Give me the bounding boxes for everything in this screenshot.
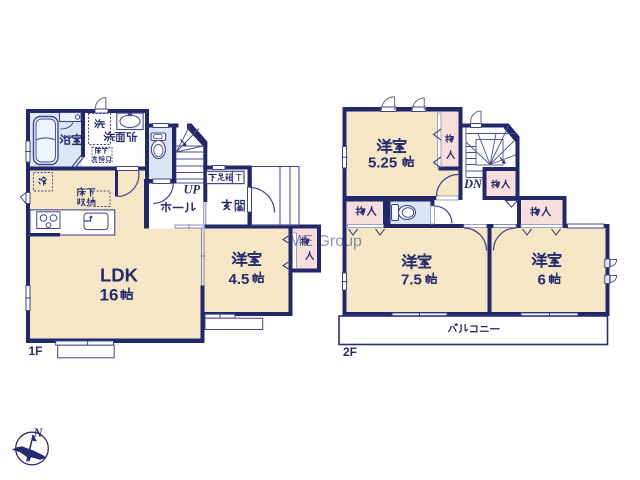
svg-text:DN: DN: [463, 177, 483, 191]
svg-text:ME Group: ME Group: [289, 233, 362, 250]
svg-text:7.5: 7.5: [401, 272, 422, 289]
svg-text:2F: 2F: [343, 345, 357, 359]
svg-text:1F: 1F: [29, 344, 43, 358]
svg-text:UP: UP: [184, 183, 201, 197]
svg-text:5.25: 5.25: [368, 155, 397, 172]
svg-text:6: 6: [538, 272, 546, 289]
svg-text:N: N: [33, 426, 44, 440]
svg-text:4.5: 4.5: [229, 271, 250, 288]
svg-text:16: 16: [100, 286, 119, 305]
svg-text:LDK: LDK: [100, 265, 139, 286]
svg-text:T: T: [236, 173, 242, 184]
